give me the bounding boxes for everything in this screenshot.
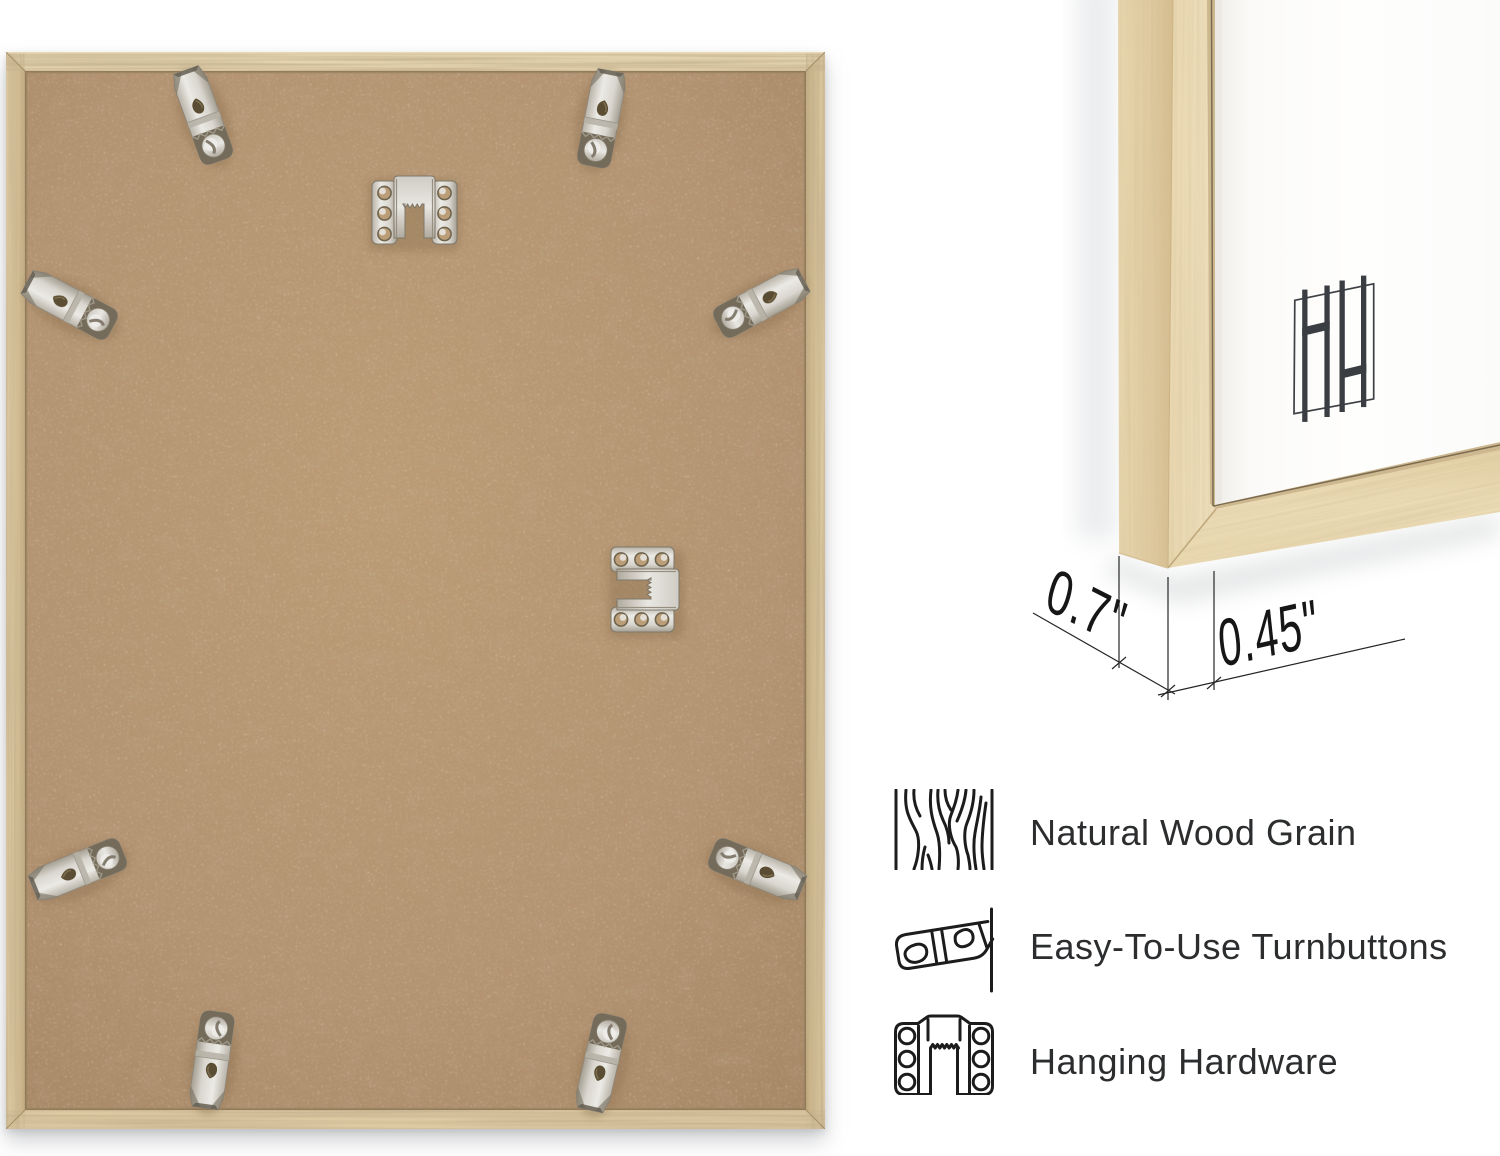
svg-text:0.45": 0.45" — [1215, 585, 1323, 681]
